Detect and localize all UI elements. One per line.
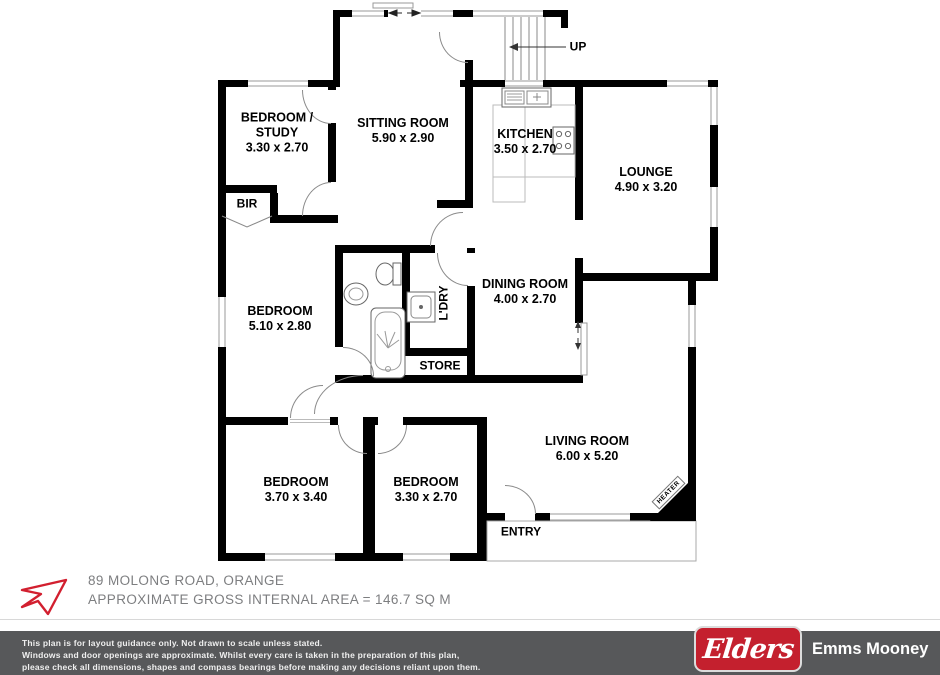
awning-outline (373, 3, 413, 8)
window (505, 80, 543, 87)
room-name: STUDY (256, 126, 298, 140)
floor-plan: BEDROOM / STUDY 3.30 x 2.70 SITTING ROOM… (0, 0, 940, 570)
room-label-bedroom-study: BEDROOM / STUDY 3.30 x 2.70 (241, 111, 313, 156)
window (688, 305, 696, 347)
room-name: SITTING ROOM (357, 116, 449, 130)
bathtub-icon (371, 308, 405, 378)
window (710, 87, 718, 125)
room-label-bedroom-left: BEDROOM 3.70 x 3.40 (263, 475, 328, 505)
room-name: BEDROOM (393, 475, 458, 489)
bir-label: BIR (237, 197, 258, 212)
kitchen-sink-icon (502, 88, 551, 107)
room-dims: 3.50 x 2.70 (494, 142, 557, 156)
basin-icon (344, 283, 368, 305)
plan-footer-text: 89 MOLONG ROAD, ORANGE APPROXIMATE GROSS… (88, 571, 451, 609)
room-dims: 5.90 x 2.90 (372, 131, 435, 145)
room-label-bedroom-middle: BEDROOM 5.10 x 2.80 (247, 304, 312, 334)
address-line: 89 MOLONG ROAD, ORANGE (88, 571, 451, 590)
up-label: UP (570, 40, 587, 55)
window (352, 10, 384, 17)
room-dims: 6.00 x 5.20 (556, 449, 619, 463)
room-label-living-room: LIVING ROOM 6.00 x 5.20 (545, 434, 629, 464)
window (473, 10, 543, 17)
footer-divider (0, 619, 940, 620)
entry-label: ENTRY (501, 525, 541, 540)
disclaimer-text: This plan is for layout guidance only. N… (22, 637, 481, 673)
laundry-trough-icon (407, 292, 435, 322)
room-name: BEDROOM (247, 304, 312, 318)
elders-logo: Elders (694, 626, 802, 672)
stairs-icon (505, 17, 545, 80)
room-label-lounge: LOUNGE 4.90 x 3.20 (615, 165, 678, 195)
elders-logo-text: Elders (701, 634, 795, 665)
window (421, 10, 453, 17)
area-line: APPROXIMATE GROSS INTERNAL AREA = 146.7 … (88, 590, 451, 609)
window (218, 297, 226, 347)
room-label-kitchen: KITCHEN 3.50 x 2.70 (494, 127, 557, 157)
plan-graphics (0, 0, 940, 570)
room-name: DINING ROOM (482, 277, 568, 291)
store-label: STORE (419, 359, 460, 374)
window (710, 187, 718, 227)
sliding-door-icon (575, 321, 587, 375)
laundry-label: L'DRY (437, 285, 452, 320)
window (550, 513, 630, 521)
window (265, 553, 335, 561)
window (667, 80, 708, 87)
room-name: BEDROOM / (241, 111, 313, 125)
agency-name: Emms Mooney (812, 640, 928, 659)
room-label-bedroom-center: BEDROOM 3.30 x 2.70 (393, 475, 458, 505)
disclaimer-line: please check all dimensions, shapes and … (22, 661, 481, 673)
disclaimer-line: Windows and door openings are approximat… (22, 649, 481, 661)
room-name: LIVING ROOM (545, 434, 629, 448)
room-dims: 5.10 x 2.80 (249, 319, 312, 333)
window (248, 80, 308, 87)
room-dims: 4.90 x 3.20 (615, 180, 678, 194)
room-label-dining-room: DINING ROOM 4.00 x 2.70 (482, 277, 568, 307)
room-dims: 3.70 x 3.40 (265, 490, 328, 504)
room-dims: 3.30 x 2.70 (246, 141, 309, 155)
room-dims: 4.00 x 2.70 (494, 292, 557, 306)
toilet-icon (376, 263, 401, 285)
north-compass-icon (14, 574, 74, 618)
room-name: LOUNGE (619, 165, 672, 179)
bifold-door-icon (222, 216, 272, 227)
room-name: KITCHEN (497, 127, 553, 141)
room-dims: 3.30 x 2.70 (395, 490, 458, 504)
room-name: BEDROOM (263, 475, 328, 489)
window (403, 553, 450, 561)
disclaimer-line: This plan is for layout guidance only. N… (22, 637, 481, 649)
room-label-sitting-room: SITTING ROOM 5.90 x 2.90 (357, 116, 449, 146)
floor-plan-page: BEDROOM / STUDY 3.30 x 2.70 SITTING ROOM… (0, 0, 940, 675)
